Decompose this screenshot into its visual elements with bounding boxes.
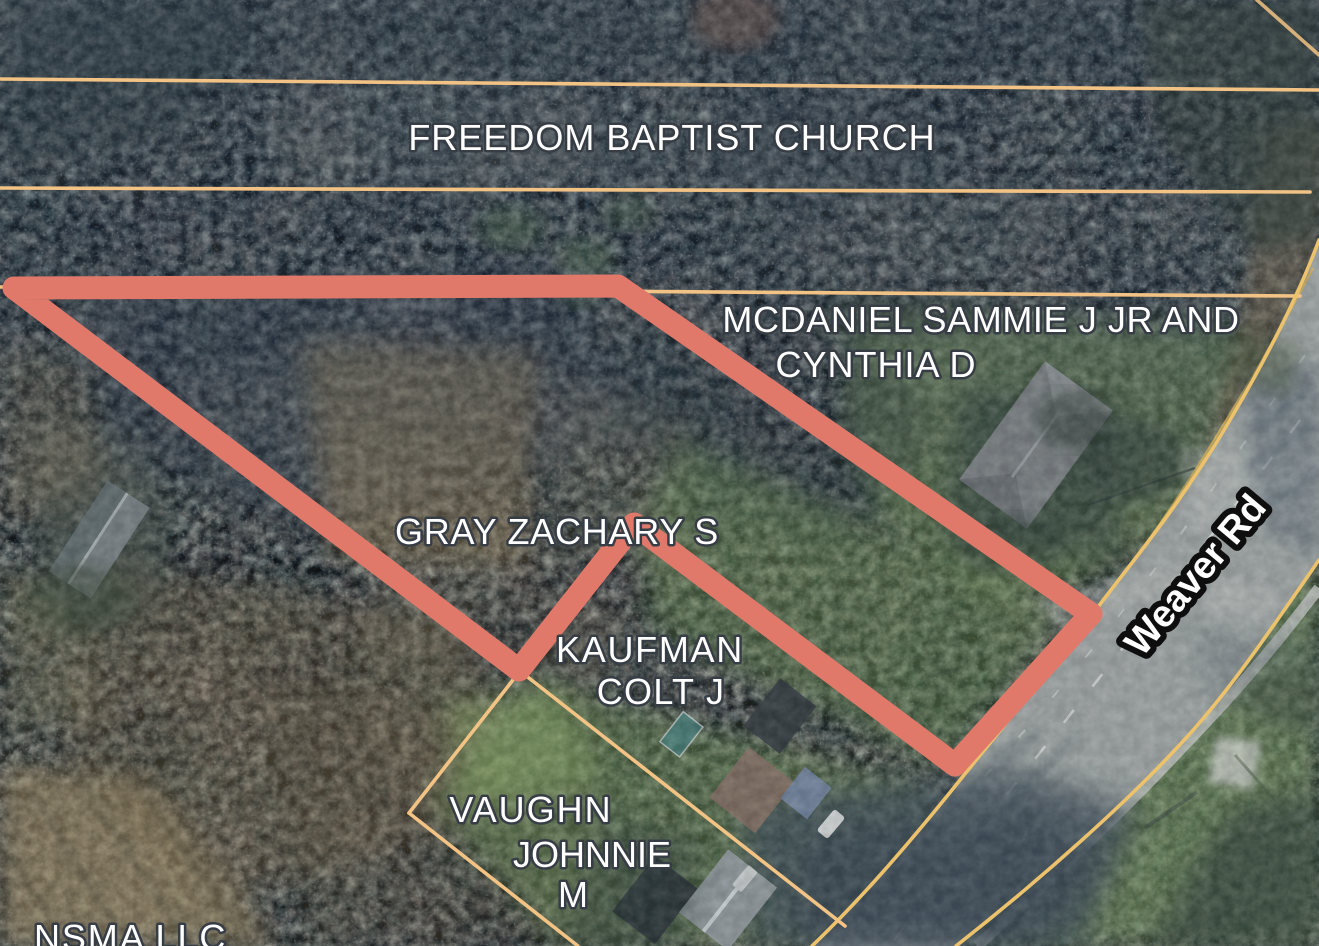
svg-text:MCDANIEL SAMMIE J JR AND: MCDANIEL SAMMIE J JR AND bbox=[722, 299, 1239, 340]
svg-text:COLT J: COLT J bbox=[597, 671, 726, 712]
svg-text:NSMA LLC: NSMA LLC bbox=[34, 917, 227, 946]
svg-text:JOHNNIE: JOHNNIE bbox=[513, 834, 671, 875]
svg-text:M: M bbox=[558, 874, 588, 915]
svg-text:GRAY ZACHARY S: GRAY ZACHARY S bbox=[395, 511, 719, 552]
svg-text:FREEDOM BAPTIST CHURCH: FREEDOM BAPTIST CHURCH bbox=[408, 117, 935, 158]
svg-text:KAUFMAN: KAUFMAN bbox=[556, 629, 744, 670]
svg-text:VAUGHN: VAUGHN bbox=[449, 789, 612, 830]
svg-text:CYNTHIA D: CYNTHIA D bbox=[775, 344, 976, 385]
